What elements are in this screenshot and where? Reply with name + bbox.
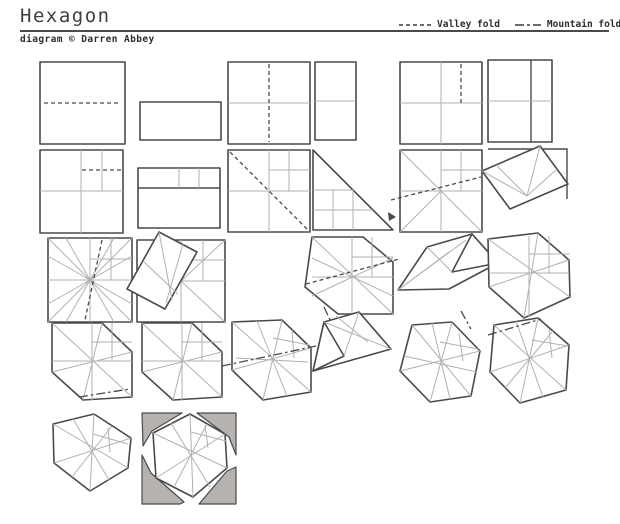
step-21-figure: [313, 307, 391, 371]
mountain-fold-label: Mountain fold: [547, 19, 620, 30]
step-9-figure: [228, 150, 310, 232]
step-1-figure: [40, 62, 125, 144]
valley-fold-label: Valley fold: [437, 19, 500, 30]
step-20-figure: [222, 320, 316, 400]
step-25-figure: [142, 413, 236, 504]
step-23-figure: [488, 318, 569, 403]
mountain-fold-sample-icon: [514, 21, 542, 29]
step-14-figure: [127, 232, 225, 322]
step-16-mountain-shape: [461, 311, 471, 329]
origami-diagram-page: Hexagon diagram © Darren Abbey Valley fo…: [0, 0, 620, 524]
fold-legend: Valley fold Mountain fold: [398, 19, 620, 30]
step-17-figure: [488, 233, 570, 318]
step-18-figure: [52, 323, 132, 400]
step-22-outline-shape: [400, 322, 480, 402]
step-2-outline-shape: [140, 102, 221, 140]
step-16-figure: [398, 234, 498, 329]
step-10-figure: [313, 150, 393, 230]
step-12-outline-shape: [482, 146, 568, 209]
step-5-figure: [400, 62, 482, 144]
step-6-figure: [488, 60, 552, 142]
step-19-figure: [142, 323, 222, 400]
step-12-figure: [482, 146, 568, 209]
step-13-figure: [48, 238, 132, 322]
step-24-figure: [53, 414, 131, 491]
step-21-mountain-shape: [324, 307, 331, 322]
page-title: Hexagon: [20, 5, 111, 27]
valley-fold-sample-icon: [398, 21, 432, 29]
credit-line: diagram © Darren Abbey: [20, 34, 155, 45]
step-4-figure: [315, 62, 356, 140]
step-8-figure: [138, 168, 220, 228]
step-2-figure: [140, 102, 221, 140]
step-11-figure: [388, 150, 482, 232]
step-11-mark-shape: [388, 212, 396, 221]
step-15-figure: [305, 237, 399, 314]
step-7-figure: [40, 150, 123, 233]
diagram-canvas: [0, 0, 620, 524]
title-divider: [20, 30, 609, 32]
step-3-figure: [228, 62, 310, 144]
step-22-figure: [400, 322, 480, 402]
